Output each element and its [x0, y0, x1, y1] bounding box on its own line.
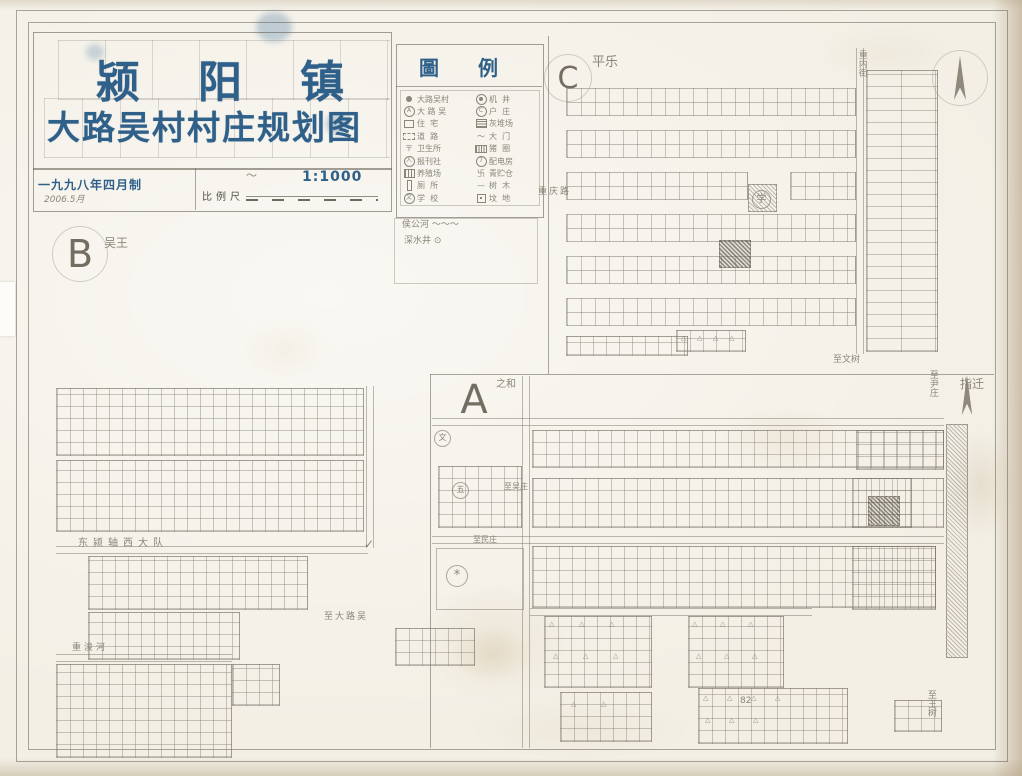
- triangle-house-icon: △: [692, 620, 697, 628]
- legend-label: 机 井: [489, 94, 510, 105]
- triangle-house-icon: △: [775, 694, 780, 702]
- house-grid: [88, 612, 240, 660]
- note-82: 82: [740, 697, 751, 707]
- note-zhiqian: 指迁: [960, 378, 984, 391]
- legend-entry-right-8: 坟 地: [475, 192, 539, 204]
- paper-tear-chip: [0, 282, 15, 336]
- legend-entry-right-2: 灰堆场: [475, 118, 539, 130]
- triangle-house-icon: △: [705, 716, 710, 724]
- scanned-map-sheet: 颍 阳 镇 大路吴村村庄规划图 一九九八年四月制 2006.5月 比例尺 1:1…: [0, 0, 1022, 776]
- triangle-house-icon: △: [549, 620, 554, 628]
- symbol-circle-wen: 文: [434, 430, 451, 447]
- triangle-house-icon: △: [571, 700, 576, 708]
- legend-entry-left-8: 文学 校: [403, 192, 475, 204]
- house-grid: [395, 628, 475, 666]
- legend-label: 厕 所: [417, 180, 438, 191]
- house-grid: [856, 430, 944, 470]
- legend-symbol-char: —: [475, 181, 487, 191]
- map-title: 大路吴村村庄规划图: [47, 101, 362, 149]
- legend-label: 住 宅: [417, 118, 438, 129]
- house-grid: [566, 130, 856, 158]
- legend-entry-left-7: 厕 所: [403, 180, 475, 192]
- road-line: [432, 536, 944, 544]
- legend-label: 猪 圈: [489, 143, 510, 154]
- triangle-house-icon: △: [727, 694, 732, 702]
- triangle-house-icon: △: [583, 652, 588, 660]
- road-line: [530, 608, 812, 616]
- legend-label: 坟 地: [489, 193, 510, 204]
- legend-symbol-gridf: [475, 119, 487, 129]
- legend-title: 圖 例: [419, 52, 514, 81]
- legend-entry-right-4: 猪 圈: [475, 143, 539, 155]
- label-dadui: 东颍轴西大队: [78, 538, 168, 549]
- triangle-house-icon: △: [681, 334, 686, 342]
- house-grid: [566, 88, 856, 116]
- triangle-house-icon: △: [748, 620, 753, 628]
- section-letter-a: A: [446, 372, 502, 428]
- legend-entry-left-1: A大 路 吴: [403, 105, 475, 117]
- pencil-squiggle: ～: [246, 170, 257, 182]
- legend-symbol-circ: 7: [475, 156, 487, 166]
- house-grid: [866, 70, 938, 352]
- legend-entry-right-1: C户 庄: [475, 105, 539, 117]
- note-zhihe: 之和: [496, 379, 516, 390]
- road-label-neijie: 重内街: [856, 50, 866, 77]
- road-label-chongqing: 重庆路: [538, 188, 571, 198]
- legend-symbol-grid: [403, 169, 415, 179]
- legend-title-underline: [396, 86, 542, 87]
- label-zhidaluwu: 至大路吴: [324, 613, 368, 623]
- symbol-school: 学: [752, 190, 771, 209]
- road-line: [856, 48, 864, 354]
- legend-entry-left-4: 〒卫生所: [403, 143, 475, 155]
- date-line: 一九九八年四月制: [38, 176, 142, 193]
- house-grid: [566, 256, 856, 284]
- house-grid: [698, 688, 848, 744]
- road-line: [432, 418, 944, 426]
- house-grid: [56, 388, 364, 456]
- triangle-house-icon: △: [553, 652, 558, 660]
- triangle-house-icon: △: [713, 334, 718, 342]
- road-line: [56, 654, 232, 662]
- house-grid: [566, 214, 856, 242]
- legend-entries: 大路吴村A大 路 吴住 宅道 路〒卫生所人报刊社养殖场厕 所文学 校机 井C户 …: [403, 93, 541, 205]
- shaded-building: [868, 496, 900, 526]
- legend-label: 学 校: [417, 193, 438, 204]
- shaded-building: [719, 240, 751, 268]
- legend-symbol-boxdot: [475, 193, 487, 203]
- legend-entry-right-5: 7配电房: [475, 155, 539, 167]
- legend-symbol-circ: A: [403, 107, 415, 117]
- legend-note-well: 深水井 ⊙: [404, 237, 441, 247]
- triangle-house-icon: △: [753, 716, 758, 724]
- legend-label: 大路吴村: [417, 94, 449, 105]
- triangle-house-icon: △: [696, 652, 701, 660]
- legend-symbol-char: 〒: [403, 144, 415, 154]
- house-grid: [566, 336, 688, 356]
- house-grid: [566, 298, 856, 326]
- divider-a-top: [430, 374, 994, 375]
- label-zhiwangshu: 至王树: [925, 690, 935, 717]
- legend-symbol-dashed: [403, 131, 415, 141]
- triangle-house-icon: △: [613, 652, 618, 660]
- legend-label: 树 木: [489, 180, 510, 191]
- legend-label: 青贮仓: [489, 168, 513, 179]
- triangle-house-icon: △: [729, 716, 734, 724]
- legend-entry-right-3: ～大 门: [475, 130, 539, 142]
- legend-label: 大 路 吴: [417, 106, 446, 117]
- label-zhiminzhuang: 至民庄: [473, 536, 497, 545]
- house-grid: [688, 616, 784, 688]
- road-line: [366, 386, 374, 548]
- legend-entry-left-5: 人报刊社: [403, 155, 475, 167]
- legend-symbol-char: 卐: [475, 169, 487, 179]
- north-arrow-icon: [932, 50, 988, 106]
- symbol-star: *: [446, 565, 468, 587]
- triangle-house-icon: △: [601, 700, 606, 708]
- house-grid: [56, 460, 364, 532]
- legend-label: 报刊社: [417, 156, 441, 167]
- divider-a-left: [430, 374, 431, 748]
- section-letter-b: B: [52, 226, 108, 282]
- date-pencil-note: 2006.5月: [44, 192, 85, 205]
- legend-label: 卫生所: [417, 143, 441, 154]
- scale-bar: [246, 196, 378, 201]
- house-grid: [852, 546, 936, 610]
- legend-symbol-char: ～: [475, 131, 487, 141]
- symbol-circle-wu: 五: [452, 482, 469, 499]
- house-grid: [232, 664, 280, 706]
- north-arrow-glyph: [945, 56, 975, 100]
- legend-symbol-dot: [403, 94, 415, 104]
- legend-label: 道 路: [417, 131, 438, 142]
- triangle-house-icon: △: [724, 652, 729, 660]
- scale-ratio: 1:1000: [302, 169, 362, 185]
- label-zhiyinzhuang: 至尹庄: [927, 370, 937, 397]
- legend-entry-left-0: 大路吴村: [403, 93, 475, 105]
- house-grid: [544, 616, 652, 688]
- triangle-house-icon: △: [703, 694, 708, 702]
- hatched-strip: [946, 424, 968, 658]
- check-mark: ✓: [364, 538, 374, 551]
- legend-symbol-stripe: [475, 144, 487, 154]
- section-letter-c: C: [544, 54, 592, 102]
- legend-label: 大 门: [489, 131, 510, 142]
- legend-note-river: 侯公河 ～～～: [402, 221, 459, 231]
- house-grid: [676, 330, 746, 352]
- paper-edge-top: [0, 0, 1022, 10]
- house-grid: [88, 556, 308, 610]
- label-chongjunhe: 重浚河: [72, 644, 108, 654]
- legend-entry-left-6: 养殖场: [403, 167, 475, 179]
- triangle-house-icon: △: [751, 694, 756, 702]
- triangle-house-icon: △: [609, 620, 614, 628]
- label-zhiwuzhuang: 至吴庄: [504, 483, 528, 492]
- house-grid: [56, 664, 232, 758]
- house-grid: [790, 172, 856, 200]
- triangle-house-icon: △: [752, 652, 757, 660]
- legend-symbol-circ: 人: [403, 156, 415, 166]
- legend-entry-left-3: 道 路: [403, 130, 475, 142]
- legend-label: 配电房: [489, 156, 513, 167]
- triangle-house-icon: △: [720, 620, 725, 628]
- legend-label: 灰堆场: [489, 118, 513, 129]
- house-grid: [566, 172, 748, 200]
- triangle-house-icon: △: [579, 620, 584, 628]
- house-grid: [438, 466, 522, 528]
- date-scale-divider: [195, 168, 196, 210]
- label-zhiwenshu: 至文树: [833, 356, 860, 366]
- legend-symbol-circ: 文: [403, 193, 415, 203]
- legend-entry-right-7: —树 木: [475, 180, 539, 192]
- scale-label: 比例尺: [202, 188, 244, 203]
- legend-symbol-circ: C: [475, 107, 487, 117]
- legend-symbol-circ2: [475, 94, 487, 104]
- legend-entry-left-2: 住 宅: [403, 118, 475, 130]
- note-wuwang: 吴王: [104, 237, 128, 250]
- triangle-house-icon: △: [729, 334, 734, 342]
- legend-symbol-square: [403, 119, 415, 129]
- triangle-house-icon: △: [697, 334, 702, 342]
- legend-entry-right-6: 卐青贮仓: [475, 167, 539, 179]
- legend-entry-right-0: 机 井: [475, 93, 539, 105]
- legend-label: 养殖场: [417, 168, 441, 179]
- note-pingle: 平乐: [592, 56, 618, 70]
- legend-symbol-bar: [403, 181, 415, 191]
- legend-label: 户 庄: [489, 106, 510, 117]
